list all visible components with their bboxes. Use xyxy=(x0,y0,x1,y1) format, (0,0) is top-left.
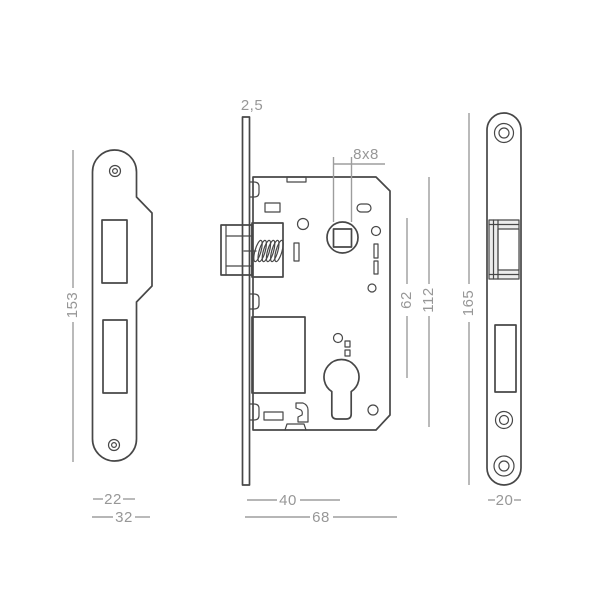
deadbolt-opening xyxy=(495,325,516,392)
screw-hole-icon xyxy=(110,166,121,177)
latch-cutout xyxy=(102,220,127,283)
faceplate-side xyxy=(243,117,250,485)
screw-hole-icon xyxy=(494,456,514,476)
euro-cylinder-hole xyxy=(324,360,359,419)
dim-label-total-width: 32 xyxy=(115,509,133,526)
dim-label-strike-height: 153 xyxy=(64,292,81,319)
screw-hole-icon xyxy=(500,416,509,425)
dim-label-case-height: 112 xyxy=(420,287,437,312)
dim-label-faceplate-thickness: 2,5 xyxy=(241,97,263,114)
hole xyxy=(372,227,381,236)
technical-drawing-canvas: 153 22 32 2,5 xyxy=(0,0,600,600)
strike-plate-view: 153 22 32 xyxy=(64,150,152,526)
strike-plate-outline xyxy=(93,150,153,461)
hook-bracket xyxy=(296,403,308,422)
spindle-follower xyxy=(327,222,358,253)
mortise-lock-diagram: 153 22 32 2,5 xyxy=(0,0,600,600)
latch-face xyxy=(498,229,519,270)
hole xyxy=(334,334,343,343)
slot xyxy=(345,341,350,347)
lock-body-view: 2,5 xyxy=(221,97,437,526)
guide-hole xyxy=(298,219,309,230)
slot xyxy=(264,412,283,420)
lock-case-outline xyxy=(253,177,390,430)
dim-label-cylinder-distance: 62 xyxy=(398,291,415,309)
fixing-tab xyxy=(250,294,259,309)
dim-label-total-depth: 68 xyxy=(312,509,330,526)
faceplate-view: 165 20 xyxy=(460,113,521,509)
dim-label-backset: 40 xyxy=(279,492,297,509)
screw-hole-icon xyxy=(499,461,509,471)
hole xyxy=(368,405,378,415)
dim-label-plate-width: 22 xyxy=(104,491,122,508)
faceplate-outline xyxy=(487,113,521,485)
hole xyxy=(368,284,376,292)
screw-hole-icon xyxy=(495,124,514,143)
dim-label-faceplate-width: 20 xyxy=(496,492,514,509)
dim-label-faceplate-height: 165 xyxy=(460,290,477,317)
slot xyxy=(294,243,299,261)
slot xyxy=(357,204,371,212)
screw-hole-icon xyxy=(113,169,118,174)
screw-hole-icon xyxy=(109,440,120,451)
latch-bolt xyxy=(221,225,252,275)
slot xyxy=(374,261,378,274)
slot xyxy=(374,244,378,258)
screw-hole-icon xyxy=(496,412,513,429)
dim-label-spindle: 8x8 xyxy=(353,146,379,163)
screw-hole-icon xyxy=(499,128,509,138)
slot xyxy=(345,350,350,356)
fixing-tab xyxy=(250,404,259,420)
spindle-square-hole xyxy=(334,229,352,247)
deadbolt-box xyxy=(252,317,305,393)
fixing-tab xyxy=(250,182,259,197)
bottom-edge-notch xyxy=(285,424,306,430)
latch-bolt-front xyxy=(489,220,519,279)
slot xyxy=(265,203,280,212)
deadbolt-cutout xyxy=(103,320,127,393)
screw-hole-icon xyxy=(112,443,117,448)
